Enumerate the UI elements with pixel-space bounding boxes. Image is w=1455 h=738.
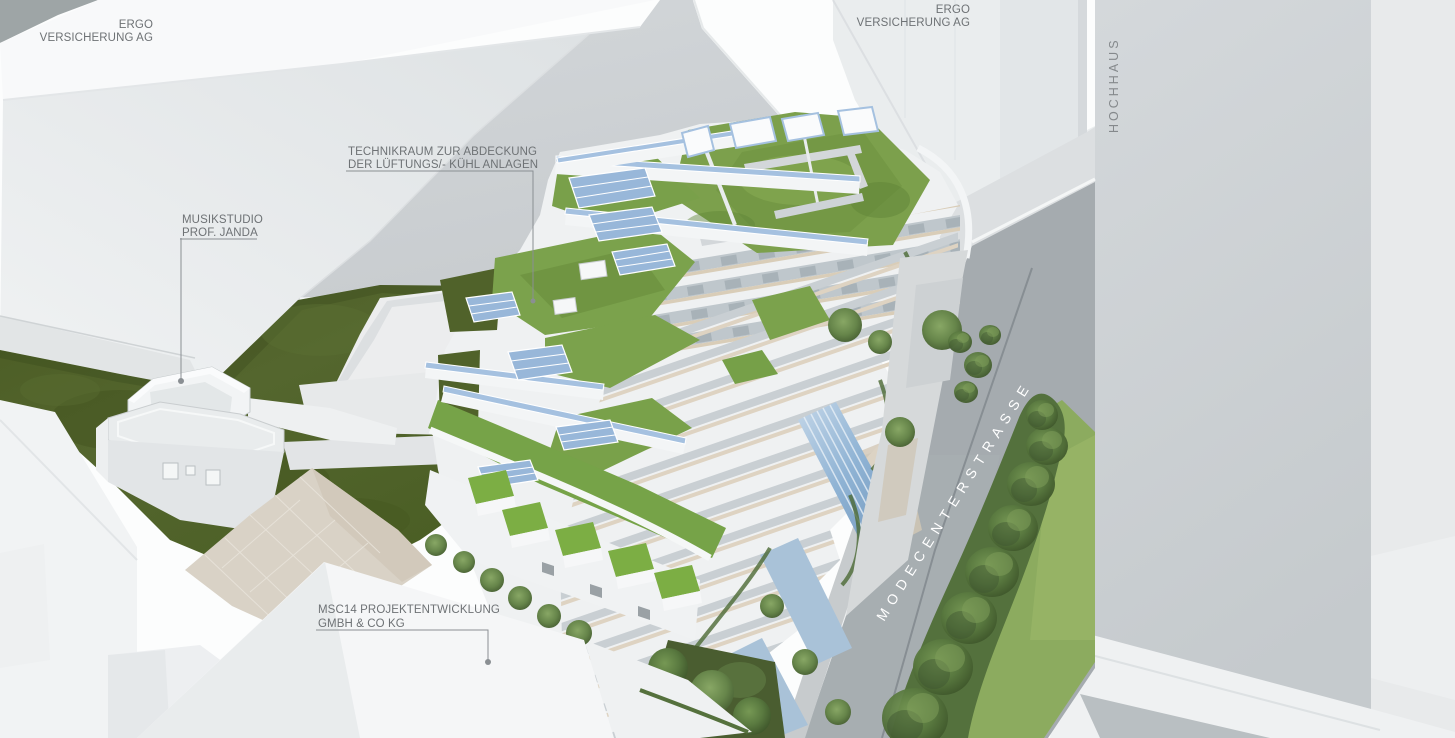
svg-text:HOCHHAUS: HOCHHAUS xyxy=(1107,37,1121,133)
svg-text:MSC14 PROJEKTENTWICKLUNG: MSC14 PROJEKTENTWICKLUNG xyxy=(318,604,500,616)
svg-text:DER LÜFTUNGS/- KÜHL ANLAGEN: DER LÜFTUNGS/- KÜHL ANLAGEN xyxy=(348,159,538,171)
svg-text:ERGO: ERGO xyxy=(119,19,153,31)
svg-text:VERSICHERUNG AG: VERSICHERUNG AG xyxy=(40,32,153,44)
svg-text:GMBH & CO KG: GMBH & CO KG xyxy=(318,618,405,630)
svg-text:VERSICHERUNG AG: VERSICHERUNG AG xyxy=(857,17,970,29)
svg-text:MUSIKSTUDIO: MUSIKSTUDIO xyxy=(182,214,263,226)
svg-text:ERGO: ERGO xyxy=(936,4,970,16)
svg-text:PROF. JANDA: PROF. JANDA xyxy=(182,227,258,239)
svg-text:TECHNIKRAUM ZUR ABDECKUNG: TECHNIKRAUM ZUR ABDECKUNG xyxy=(348,146,537,158)
